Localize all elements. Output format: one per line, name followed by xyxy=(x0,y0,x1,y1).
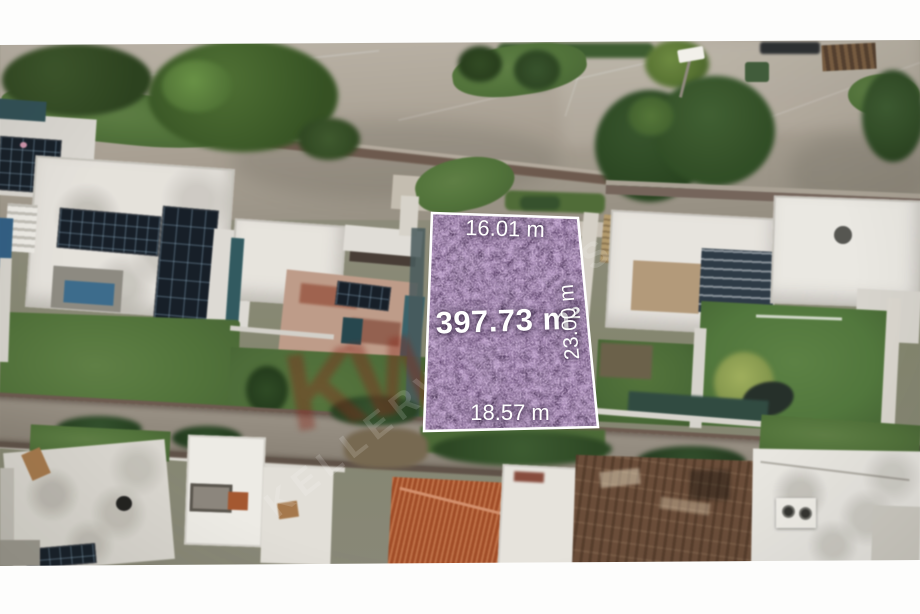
aerial-photo: KW KELLERWILLIAMS xyxy=(0,0,920,614)
lot-back-dimension-label: 18.57 m xyxy=(430,400,590,426)
lot-front-dimension-label: 16.01 m xyxy=(425,214,586,244)
